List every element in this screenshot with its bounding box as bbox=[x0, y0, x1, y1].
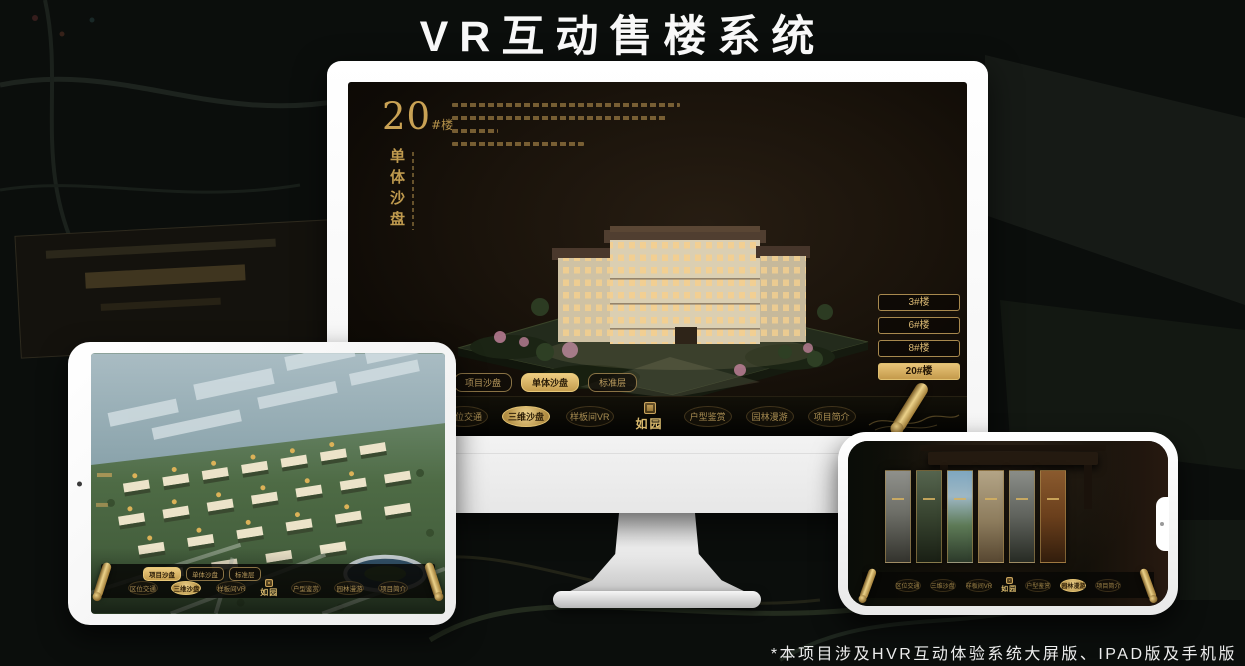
phone-notch bbox=[1156, 497, 1169, 551]
phone-bottom-nav: 区位交通 三维沙盘 样板间VR 如园 户型鉴赏 园林漫游 项目简介 bbox=[862, 572, 1154, 598]
ruyuan-logo-text: 如园 bbox=[636, 415, 664, 432]
nav-item-floorplans[interactable]: 户型鉴赏 bbox=[684, 404, 732, 429]
building-description-text bbox=[452, 103, 692, 155]
nav-item-garden-tour[interactable]: 园林漫游 bbox=[1059, 579, 1087, 592]
nav-item-showroom-vr[interactable]: 样板间VR bbox=[564, 404, 616, 429]
description-text-line bbox=[452, 116, 667, 120]
building-button-3[interactable]: 3#楼 bbox=[878, 294, 960, 311]
tab-project-sandbox[interactable]: 项目沙盘 bbox=[454, 373, 512, 392]
nav-item-location[interactable]: 区位交通 bbox=[894, 579, 922, 592]
nav-item-3d-sandbox[interactable]: 三维沙盘 bbox=[170, 580, 202, 596]
ruyuan-seal-icon bbox=[644, 402, 656, 414]
nav-item-project-intro[interactable]: 项目简介 bbox=[808, 404, 856, 429]
nav-item-location[interactable]: 区位交通 bbox=[127, 580, 159, 596]
scroll-ornament-icon bbox=[859, 568, 877, 601]
scene-gallery bbox=[885, 470, 1066, 563]
gate-roof bbox=[920, 445, 1106, 451]
page-title: VR互动售楼系统 bbox=[0, 2, 1245, 64]
phone-device: 区位交通 三维沙盘 样板间VR 如园 户型鉴赏 园林漫游 项目简介 bbox=[838, 432, 1178, 615]
gallery-panel[interactable] bbox=[916, 470, 942, 563]
nav-item-project-intro[interactable]: 项目简介 bbox=[1094, 579, 1122, 592]
description-text-line bbox=[452, 129, 498, 133]
gallery-panel[interactable] bbox=[885, 470, 911, 563]
ruyuan-logo: 如园 bbox=[636, 402, 664, 432]
gate-beam bbox=[928, 452, 1098, 465]
promo-canvas: VR互动售楼系统 20#楼 单体沙盘 bbox=[0, 0, 1245, 666]
tablet-camera-icon bbox=[77, 481, 82, 486]
tablet-screen: 项目沙盘 单体沙盘 标准层 区位交通 三维沙盘 样板间VR 如园 户型鉴赏 园林… bbox=[91, 353, 445, 614]
description-text-line bbox=[452, 103, 680, 107]
nav-item-garden-tour[interactable]: 园林漫游 bbox=[333, 580, 365, 596]
tablet-nav-items: 区位交通 三维沙盘 样板间VR 如园 户型鉴赏 园林漫游 项目简介 bbox=[121, 580, 415, 596]
tab-single-sandbox[interactable]: 单体沙盘 bbox=[521, 373, 579, 392]
nav-item-3d-sandbox[interactable]: 三维沙盘 bbox=[502, 404, 550, 429]
gate-post bbox=[1084, 465, 1092, 509]
gallery-panel[interactable] bbox=[1040, 470, 1066, 563]
tab-project-sandbox[interactable]: 项目沙盘 bbox=[143, 567, 181, 581]
monitor-stand-base bbox=[553, 591, 761, 608]
footnote-text: *本项目涉及HVR互动体验系统大屏版、IPAD版及手机版 bbox=[771, 640, 1237, 664]
building-button-6[interactable]: 6#楼 bbox=[878, 317, 960, 334]
nav-item-showroom-vr[interactable]: 样板间VR bbox=[964, 579, 994, 592]
ruyuan-logo-text: 如园 bbox=[1001, 584, 1017, 594]
tab-standard-floor[interactable]: 标准层 bbox=[588, 373, 637, 392]
gallery-panel[interactable] bbox=[1009, 470, 1035, 563]
tablet-sub-tabs: 项目沙盘 单体沙盘 标准层 bbox=[143, 567, 261, 581]
building-button-20[interactable]: 20#楼 bbox=[878, 363, 960, 380]
ruyuan-seal-icon bbox=[1006, 577, 1013, 584]
building-selector: 3#楼 6#楼 8#楼 20#楼 bbox=[878, 294, 960, 380]
gallery-panel[interactable] bbox=[978, 470, 1004, 563]
building-button-8[interactable]: 8#楼 bbox=[878, 340, 960, 357]
tablet-bottom-nav: 项目沙盘 单体沙盘 标准层 区位交通 三维沙盘 样板间VR 如园 户型鉴赏 园林… bbox=[101, 564, 435, 598]
phone-screen: 区位交通 三维沙盘 样板间VR 如园 户型鉴赏 园林漫游 项目简介 bbox=[848, 441, 1168, 606]
ruyuan-logo: 如园 bbox=[260, 579, 278, 598]
building-number-heading: 20#楼 bbox=[382, 98, 453, 135]
sandbox-sub-tabs: 项目沙盘 单体沙盘 标准层 bbox=[454, 373, 637, 392]
tab-single-sandbox[interactable]: 单体沙盘 bbox=[186, 567, 224, 581]
ruyuan-logo-text: 如园 bbox=[260, 587, 278, 598]
nav-item-project-intro[interactable]: 项目简介 bbox=[377, 580, 409, 596]
nav-item-floorplans[interactable]: 户型鉴赏 bbox=[290, 580, 322, 596]
building-model-viewport[interactable] bbox=[440, 152, 880, 397]
nav-item-floorplans[interactable]: 户型鉴赏 bbox=[1024, 579, 1052, 592]
ruyuan-seal-icon bbox=[265, 579, 273, 587]
nav-item-garden-tour[interactable]: 园林漫游 bbox=[746, 404, 794, 429]
building-subtitle-vertical: 单体沙盘 bbox=[386, 148, 407, 232]
gallery-panel[interactable] bbox=[947, 470, 973, 563]
nav-item-showroom-vr[interactable]: 样板间VR bbox=[214, 580, 249, 596]
ruyuan-logo: 如园 bbox=[1001, 577, 1017, 594]
tablet-device: 项目沙盘 单体沙盘 标准层 区位交通 三维沙盘 样板间VR 如园 户型鉴赏 园林… bbox=[68, 342, 456, 625]
tab-standard-floor[interactable]: 标准层 bbox=[229, 567, 261, 581]
subtitle-decorative-line bbox=[412, 152, 414, 230]
nav-item-3d-sandbox[interactable]: 三维沙盘 bbox=[929, 579, 957, 592]
description-text-line bbox=[452, 142, 584, 146]
